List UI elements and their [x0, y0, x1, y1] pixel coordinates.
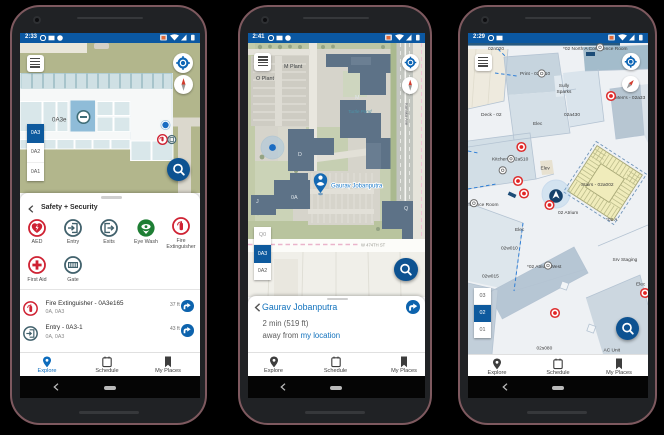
svg-text:Elev: Elev [541, 165, 551, 171]
svg-text:Elec: Elec [515, 227, 525, 233]
svg-text:02n020: 02n020 [488, 46, 504, 52]
svg-text:Srv Staging: Srv Staging [613, 257, 638, 263]
svg-text:*02 North A Conference Room: *02 North A Conference Room [563, 46, 628, 52]
svg-text:Print - 02n010: Print - 02n010 [520, 71, 550, 77]
svg-text:Men's - 02a33: Men's - 02a33 [615, 95, 646, 101]
svg-text:O Plant: O Plant [256, 76, 274, 82]
svg-text:Sparks: Sparks [557, 89, 573, 95]
svg-text:02w010: 02w010 [501, 245, 518, 251]
svg-text:Sully: Sully [559, 83, 570, 89]
svg-text:J: J [256, 199, 259, 205]
svg-text:M Plant: M Plant [284, 64, 303, 70]
svg-text:*02 A: *02 A [606, 217, 618, 223]
svg-text:W 474TH ST: W 474TH ST [361, 242, 386, 247]
svg-text:Gaurav Jobanputra: Gaurav Jobanputra [331, 183, 383, 189]
svg-text:02 Atrium: 02 Atrium [558, 210, 578, 216]
svg-text:0A3e: 0A3e [52, 116, 67, 123]
svg-text:D: D [298, 152, 302, 158]
svg-text:Elec: Elec [533, 121, 543, 127]
svg-text:M: M [355, 95, 360, 101]
svg-text:AC Unit: AC Unit [604, 347, 621, 353]
svg-text:02s080: 02s080 [537, 345, 553, 351]
svg-text:Elec: Elec [636, 281, 646, 287]
svg-text:02a430: 02a430 [564, 112, 580, 118]
svg-text:Stairs - 02a002: Stairs - 02a002 [581, 182, 614, 188]
svg-text:0A: 0A [291, 195, 298, 201]
svg-text:Deck - 02: Deck - 02 [481, 112, 502, 118]
svg-text:02w015: 02w015 [482, 273, 499, 279]
svg-text:Q: Q [404, 206, 408, 212]
svg-text:Turtle Pond: Turtle Pond [348, 109, 372, 114]
svg-text:Kanaka Ave: Kanaka Ave [404, 103, 409, 126]
